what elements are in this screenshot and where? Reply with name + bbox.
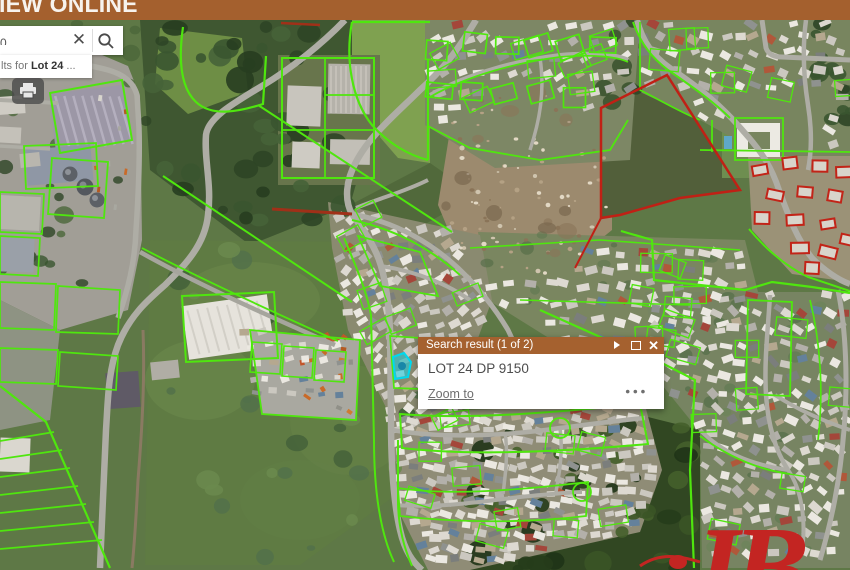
- svg-text:JB: JB: [681, 504, 806, 570]
